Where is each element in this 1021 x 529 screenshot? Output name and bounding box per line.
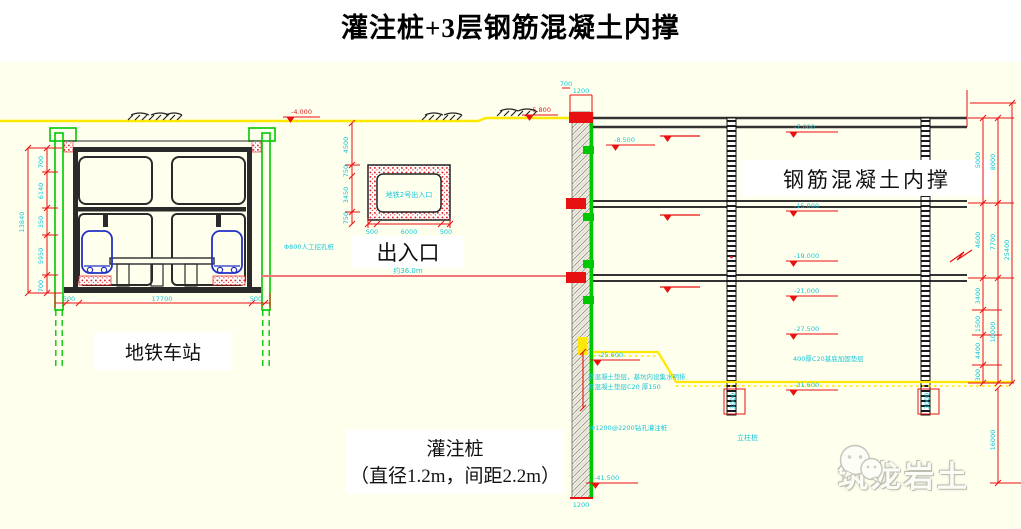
dim-label: 5000	[974, 152, 982, 169]
dim-label: 17700	[152, 295, 173, 303]
dim-label: 3400	[974, 288, 982, 305]
station-base-slab	[64, 287, 261, 293]
dim-label: 500	[63, 295, 75, 303]
elevation-ground-left: -4.000	[291, 108, 312, 116]
dim-label: 500	[250, 295, 262, 303]
dim-label: 300	[974, 369, 982, 381]
elevation-wall-upper: -8.500	[614, 136, 635, 144]
dim-label: 6000	[401, 228, 418, 236]
station-right-waler	[252, 141, 261, 152]
dim-label: 1200	[573, 501, 590, 509]
dim-label: 700	[37, 156, 45, 168]
dim-label: 5950	[37, 248, 45, 265]
track-bed-left	[79, 276, 111, 285]
pile-caption-line1: 灌注桩	[426, 438, 483, 460]
elevation-berm: -25.600	[598, 351, 623, 359]
cushion-note-1: 素混凝土垫层，基坑内设集水明排	[588, 372, 686, 381]
dim-label: 3000	[923, 393, 931, 410]
dim-label: 700	[560, 80, 572, 88]
cushion-note-2: 素混凝土垫层C20 厚150	[588, 382, 661, 391]
bored-pile-wall	[572, 112, 590, 498]
exit-label: 出入口	[377, 241, 440, 265]
base-reinforce-note: 400厚C20基底加固垫层	[793, 354, 864, 363]
elevation-wall-bottom: -41.500	[594, 474, 619, 482]
wechat-icon	[838, 444, 884, 486]
exit-box-label: 地铁2号出入口	[386, 190, 432, 199]
station-right-wall	[247, 152, 252, 287]
dim-label-total: 13840	[18, 212, 26, 233]
station-left-waler	[64, 141, 73, 152]
dim-label: 500	[366, 228, 378, 236]
dim-label: 750	[342, 165, 350, 177]
elevation-level1: -7.000	[794, 123, 815, 131]
station-mid-slab	[78, 207, 246, 212]
dim-label: 750	[342, 212, 350, 224]
dim-label: 4500	[342, 137, 350, 154]
pile-caption: 灌注桩 （直径1.2m，间距2.2m）	[346, 430, 564, 494]
bored-pile-note: Φ1200@2200钻孔灌注桩	[590, 423, 668, 432]
dim-label-total: 25400	[1003, 240, 1011, 261]
track-bed-right	[213, 276, 245, 285]
waler-2	[566, 198, 586, 209]
elevation-level4: -21.000	[794, 287, 819, 295]
dim-label: 700	[37, 280, 45, 292]
bracing-label: 钢筋混凝土内撑	[783, 168, 951, 192]
dim-label: 500	[440, 228, 452, 236]
elevation-ground-right: -5.800	[530, 106, 551, 114]
king-post-label: 立柱桩	[737, 433, 758, 442]
watermark: 筑龙岩土	[838, 444, 1020, 504]
dim-label: 3450	[342, 187, 350, 204]
dim-label: 7700	[989, 234, 997, 251]
drawing-page: 灌注桩+3层钢筋混凝土内撑	[0, 0, 1021, 529]
dim-label: 3000	[729, 393, 737, 410]
dim-label: 1500	[974, 316, 982, 333]
pile-caption-line2: （直径1.2m，间距2.2m）	[350, 465, 560, 487]
station-roof-slab	[73, 147, 252, 152]
dim-label: 10000	[989, 322, 997, 343]
platform-slab	[110, 258, 214, 264]
elevation-dig: -31.600	[794, 381, 819, 389]
waler-3	[566, 272, 586, 283]
dim-label: 4600	[974, 232, 982, 249]
dim-label: 6140	[37, 183, 45, 200]
elevation-level3: -19.000	[794, 252, 819, 260]
manual-pile-note: Φ800人工挖孔桩	[284, 242, 335, 251]
pile-wall-green-face	[590, 112, 593, 498]
dim-label: 4400	[974, 343, 982, 360]
span-note: 约36.0m	[393, 266, 423, 275]
dim-label: 8000	[989, 154, 997, 171]
dim-label: 1200	[573, 87, 590, 95]
station-label: 地铁车站	[125, 342, 201, 364]
dim-label: 350	[37, 216, 45, 228]
elevation-level5: -27.500	[794, 325, 819, 333]
station-left-wall	[73, 152, 78, 287]
crown-beam	[569, 112, 593, 123]
king-post-1	[727, 118, 736, 415]
bracing-label-group: 钢筋混凝土内撑	[742, 160, 992, 196]
elevation-level2: -15.000	[794, 202, 819, 210]
